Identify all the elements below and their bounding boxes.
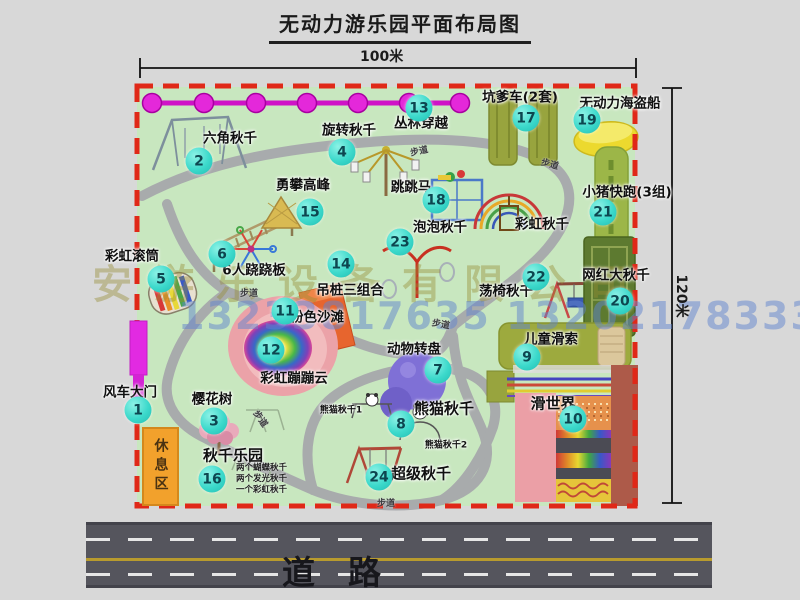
rest-area-label: 休息区: [151, 438, 171, 495]
label-rainbow-roller: 彩虹滚筒: [105, 250, 159, 264]
road-label: 道 路: [282, 546, 381, 594]
title-bar: 无动力游乐园平面布局图: [0, 6, 800, 44]
marker-kengdie-car: 17: [513, 105, 540, 132]
swing-park-note: 两个发光秋千: [236, 474, 287, 485]
label-super-swing: 超级秋千: [391, 467, 451, 482]
marker-pink-beach: 11: [272, 298, 299, 325]
marker-animal-carousel: 7: [425, 357, 452, 384]
marker-rocking-chair-swing: 22: [523, 264, 550, 291]
road: 道 路: [86, 522, 712, 588]
swing-park-note: 两个蝴蝶秋千: [236, 463, 287, 474]
marker-hanging-post-combo: 14: [328, 251, 355, 278]
label-viral-big-swing: 网红大秋千: [582, 269, 650, 283]
rest-area: 休息区: [142, 427, 179, 506]
label-hanging-post-combo: 吊桩三组合: [316, 284, 384, 298]
marker-kids-zipline: 9: [514, 344, 541, 371]
marker-pirate-ship: 19: [574, 107, 601, 134]
park-plan-image: 安游乐设备有限公司 13233817635 13202178333 步道 步道 …: [0, 0, 800, 600]
label-kengdie-car: 坑爹车(2套): [482, 91, 558, 105]
label-swing-park: 秋千乐园: [203, 449, 263, 464]
label-panda-swing: 熊猫秋千: [414, 402, 474, 417]
road-lane-line: [86, 538, 712, 541]
label-cherry-tree: 樱花树: [192, 393, 233, 407]
label-bubble-swing: 泡泡秋千: [413, 221, 467, 235]
marker-rainbow-roller: 5: [148, 266, 175, 293]
label-panda-swing-1: 熊猫秋千1: [320, 407, 362, 416]
label-climbing-peak: 勇攀高峰: [276, 179, 330, 193]
swing-park-note: 一个彩虹秋千: [236, 485, 287, 496]
road-center-line: [86, 558, 712, 561]
page-title: 无动力游乐园平面布局图: [269, 6, 531, 44]
label-animal-carousel: 动物转盘: [387, 343, 441, 357]
walkway-label: 步道: [377, 496, 395, 509]
watermark-phone: 13233817635 13202178333: [178, 294, 800, 338]
swing-park-notes: 两个蝴蝶秋千 两个发光秋千 一个彩虹秋千: [236, 463, 287, 496]
height-dimension-label: 120米: [672, 274, 692, 317]
label-panda-swing-2: 熊猫秋千2: [425, 442, 467, 451]
marker-windmill-gate: 1: [125, 397, 152, 424]
label-rotating-swing: 旋转秋千: [322, 124, 376, 138]
width-dimension-label: 100米: [360, 46, 403, 66]
marker-rotating-swing: 4: [329, 139, 356, 166]
marker-six-seat-seesaw: 6: [209, 241, 236, 268]
marker-bubble-swing: 23: [387, 229, 414, 256]
marker-jumping-horse: 18: [423, 187, 450, 214]
walkway-label: 步道: [240, 286, 258, 299]
label-rainbow-bounce-cloud: 彩虹蹦蹦云: [260, 372, 328, 386]
label-rainbow-swing: 彩虹秋千: [515, 218, 569, 232]
marker-piggy-run: 21: [590, 199, 617, 226]
marker-jungle-crossing: 13: [406, 95, 433, 122]
marker-rainbow-bounce-cloud: 12: [258, 337, 285, 364]
marker-swing-park: 16: [199, 466, 226, 493]
label-hexagon-swing: 六角秋千: [203, 132, 257, 146]
marker-hexagon-swing: 2: [186, 148, 213, 175]
marker-viral-big-swing: 20: [607, 288, 634, 315]
marker-cherry-tree: 3: [201, 408, 228, 435]
label-six-seat-seesaw: 6人跷跷板: [222, 264, 285, 278]
marker-panda-swing: 8: [388, 411, 415, 438]
marker-climbing-peak: 15: [297, 199, 324, 226]
label-piggy-run: 小猪快跑(3组): [582, 186, 671, 200]
marker-super-swing: 24: [366, 464, 393, 491]
road-lane-line: [86, 573, 712, 576]
label-rocking-chair-swing: 荡椅秋千: [479, 285, 533, 299]
marker-slide-world: 10: [560, 406, 587, 433]
